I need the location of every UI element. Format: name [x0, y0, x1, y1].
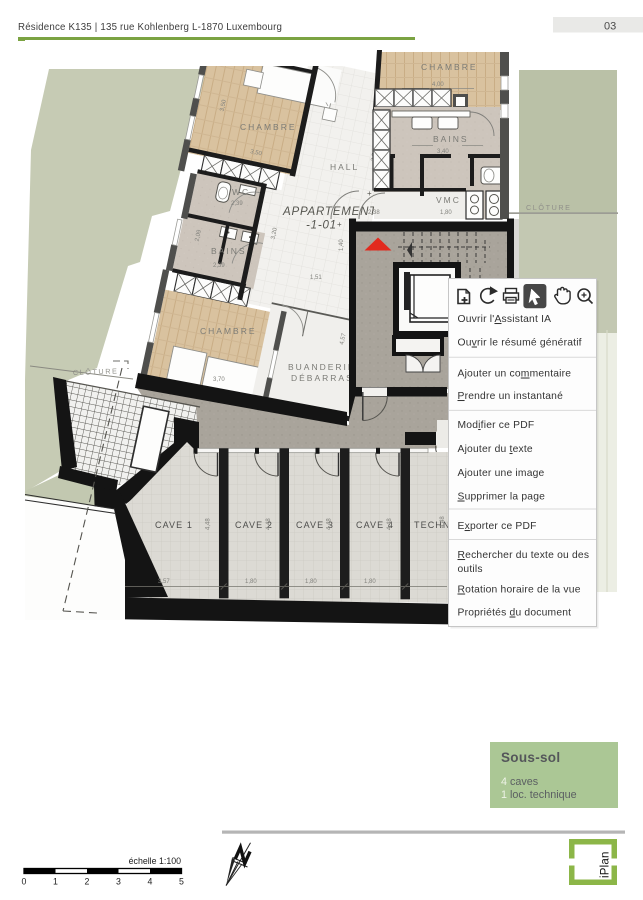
- svg-text:Ouvrir le résumé génératif: Ouvrir le résumé génératif: [458, 338, 582, 349]
- svg-text:1,80: 1,80: [440, 210, 452, 216]
- svg-text:1,40: 1,40: [339, 239, 345, 251]
- svg-text:3,57: 3,57: [158, 579, 170, 585]
- svg-text:1,80: 1,80: [305, 579, 317, 585]
- svg-text:1,80: 1,80: [364, 579, 376, 585]
- svg-text:BAINS: BAINS: [433, 134, 469, 144]
- svg-text:Rotation horaire de la vue: Rotation horaire de la vue: [458, 585, 581, 596]
- svg-text:Rechercher du texte ou des: Rechercher du texte ou des: [458, 550, 590, 561]
- svg-text:Ouvrir l'Assistant IA: Ouvrir l'Assistant IA: [458, 314, 552, 325]
- svg-text:0: 0: [22, 877, 27, 887]
- svg-text:APPARTEMENT: APPARTEMENT: [282, 206, 377, 218]
- svg-text:CLÔTURE: CLÔTURE: [73, 366, 119, 377]
- svg-text:Prendre un instantané: Prendre un instantané: [458, 391, 564, 402]
- svg-text:2: 2: [85, 877, 90, 887]
- svg-text:BUANDERIE: BUANDERIE: [288, 362, 356, 372]
- svg-text:caves: caves: [510, 776, 539, 788]
- svg-text:4,48: 4,48: [206, 518, 212, 530]
- svg-text:CLÔTURE: CLÔTURE: [526, 203, 572, 212]
- svg-text:Exporter ce PDF: Exporter ce PDF: [458, 521, 537, 532]
- svg-text:1,51: 1,51: [310, 275, 322, 281]
- svg-text:2,39: 2,39: [231, 201, 243, 207]
- svg-text:iPlan: iPlan: [600, 851, 612, 878]
- svg-text:HALL: HALL: [330, 162, 359, 172]
- svg-text:Modifier ce PDF: Modifier ce PDF: [458, 420, 535, 431]
- svg-text:CHAMBRE: CHAMBRE: [200, 326, 257, 336]
- svg-text:2,39: 2,39: [213, 263, 225, 269]
- svg-text:échelle 1:100: échelle 1:100: [129, 856, 181, 866]
- svg-text:Sous-sol: Sous-sol: [501, 750, 560, 765]
- svg-text:Résidence K135 | 135 rue Kohle: Résidence K135 | 135 rue Kohlenberg L-18…: [18, 22, 282, 33]
- svg-text:3: 3: [116, 877, 121, 887]
- svg-text:VMC: VMC: [436, 195, 461, 205]
- svg-text:1: 1: [501, 789, 507, 801]
- svg-text:4,48: 4,48: [266, 518, 272, 530]
- svg-text:1: 1: [53, 877, 58, 887]
- svg-text:outils: outils: [458, 564, 483, 575]
- svg-text:4: 4: [501, 776, 507, 788]
- svg-text:4: 4: [148, 877, 153, 887]
- svg-text:WC: WC: [232, 187, 250, 197]
- svg-text:Propriétés du document: Propriétés du document: [458, 608, 572, 619]
- svg-text:BAINS: BAINS: [211, 246, 247, 256]
- svg-text:3,70: 3,70: [213, 377, 225, 383]
- svg-text:4,00: 4,00: [432, 82, 444, 88]
- svg-text:4,48: 4,48: [327, 518, 333, 530]
- svg-text:+: +: [337, 220, 342, 229]
- svg-text:5: 5: [179, 877, 184, 887]
- svg-text:1,80: 1,80: [245, 579, 257, 585]
- svg-text:-1-01: -1-01: [306, 220, 337, 232]
- svg-text:03: 03: [604, 21, 616, 33]
- svg-text:2,38: 2,38: [368, 210, 380, 216]
- svg-text:DÉBARRAS: DÉBARRAS: [291, 373, 354, 383]
- svg-text:CHAMBRE: CHAMBRE: [421, 62, 478, 72]
- svg-text:CAVE 1: CAVE 1: [155, 520, 193, 530]
- svg-text:Ajouter un commentaire: Ajouter un commentaire: [458, 369, 572, 380]
- svg-text:loc. technique: loc. technique: [510, 789, 577, 801]
- svg-text:CHAMBRE: CHAMBRE: [240, 122, 297, 132]
- svg-text:Ajouter une image: Ajouter une image: [458, 468, 545, 479]
- svg-text:4,48: 4,48: [387, 518, 393, 530]
- svg-text:Supprimer la page: Supprimer la page: [458, 492, 546, 503]
- svg-text:4,48: 4,48: [440, 516, 446, 528]
- svg-text:Ajouter du texte: Ajouter du texte: [458, 444, 533, 455]
